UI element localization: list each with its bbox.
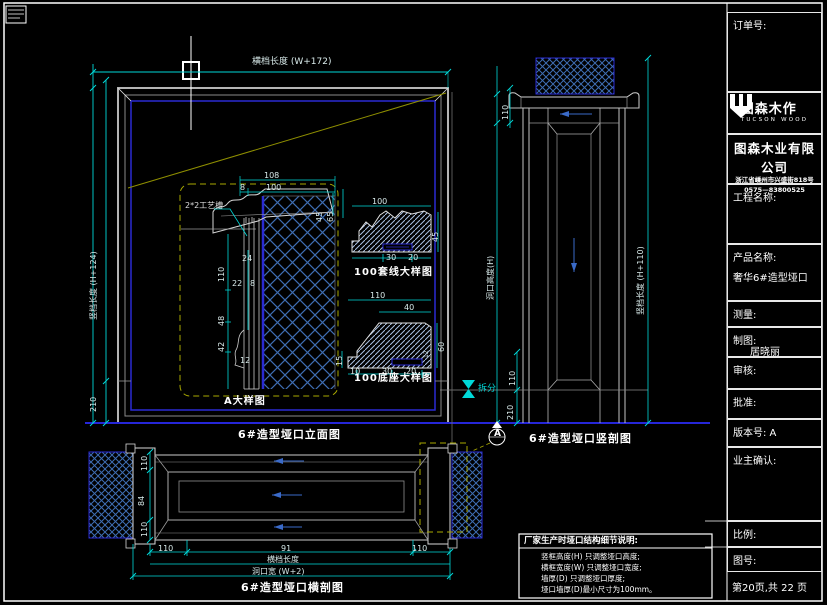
dim-elevation-width: 横档长度 (W+172) <box>252 58 332 67</box>
version-label: 版本号: A <box>733 424 776 439</box>
titleblock-order-row: 订单号: <box>727 12 822 92</box>
hsec-dim-row3: 洞口宽 (W+2) <box>252 568 305 576</box>
product-value: 奢华6#造型垭口 <box>733 269 808 284</box>
base-detail-title: 100底座大样图 <box>354 374 433 384</box>
notes-title: 厂家生产时垭口结构细节说明: <box>524 537 638 546</box>
note-line: 墙厚(D) 只调整垭口厚度; <box>541 574 657 585</box>
base-dim-110: 110 <box>370 292 385 300</box>
base-dim-40: 40 <box>404 304 414 312</box>
vertical-section-linework <box>440 55 651 452</box>
groove-note: 2*2工艺槽 <box>185 202 223 210</box>
casing-dim-45: 45 <box>432 232 440 242</box>
titleblock-scale-row: 比例: <box>727 521 822 547</box>
page-info: 第20页,共 22 页 <box>732 579 807 594</box>
dim-24: 24 <box>242 255 252 263</box>
hsec-dim-left-mid: 84 <box>138 496 146 506</box>
hsec-chain-110-left: 110 <box>158 545 173 553</box>
dim-12: 12 <box>240 357 250 365</box>
casing-dim-30: 30 <box>386 254 396 262</box>
vsec-dim-leg: 竖档长度 (H+110) <box>637 246 645 315</box>
hsec-chain-mid: 91 <box>281 545 291 553</box>
direction-arrow <box>272 458 304 530</box>
titleblock-page-row: 第20页,共 22 页 <box>727 572 822 600</box>
titleblock-version-row: 版本号: A <box>727 419 822 447</box>
hsec-chain-110-right: 110 <box>412 545 427 553</box>
dim-elevation-base: 210 <box>90 397 98 412</box>
titleblock-review-row: 审核: <box>727 357 822 389</box>
dim-108: 108 <box>264 172 279 180</box>
dim-65: 65 <box>327 212 335 222</box>
cad-drawing-sheet: 横档长度 (W+172) 竖档长度 (H+124) 210 6#造型垭口立面图 … <box>0 0 827 605</box>
hsec-dim-left-top: 110 <box>141 456 149 471</box>
dim-110: 110 <box>218 267 226 282</box>
dim-100: 100 <box>266 184 281 192</box>
base-dim-12: 12 <box>424 350 430 358</box>
direction-arrow <box>560 111 592 272</box>
split-label: 拆分 <box>478 385 496 394</box>
titleblock-owner-row: 业主确认: <box>727 447 822 521</box>
approve-label: 批准: <box>733 394 756 409</box>
hsec-dim-left-bot: 110 <box>141 522 149 537</box>
titleblock-draft-row: 制图: 居晓丽 <box>727 327 822 357</box>
tucson-wood-logo-icon <box>728 93 754 119</box>
horizontal-section-title: 6#造型垭口横剖图 <box>241 582 344 593</box>
vsec-dim-110: 110 <box>509 371 517 386</box>
owner-label: 业主确认: <box>733 452 776 467</box>
dim-8: 8 <box>240 184 245 192</box>
vertical-section-title: 6#造型垭口竖剖图 <box>529 433 632 444</box>
dim-42: 42 <box>218 342 226 352</box>
scale-label: 比例: <box>733 526 756 541</box>
review-label: 审核: <box>733 362 756 377</box>
dim-45: 45 <box>316 212 324 222</box>
titleblock-product-row: 产品名称: 奢华6#造型垭口 <box>727 244 822 301</box>
base-dim-60: 60 <box>438 342 446 352</box>
split-marker-icon <box>462 380 475 398</box>
detail-a-title: A大样图 <box>224 397 266 407</box>
dim-elevation-height: 竖档长度 (H+124) <box>90 251 98 320</box>
titleblock-company-row: 图森木业有限公司 浙江省嵊州市兴盛街818号 0575—83800525 <box>727 134 822 184</box>
casing-detail-title: 100套线大样图 <box>354 268 433 278</box>
product-label: 产品名称: <box>733 249 776 264</box>
note-line: 横框宽度(W) 只调整垭口宽度; <box>541 563 657 574</box>
dim-8b: 8 <box>250 280 255 288</box>
titleblock-drawingno-row: 图号: <box>727 547 822 572</box>
titleblock-project-row: 工程名称: <box>727 184 822 244</box>
order-label: 订单号: <box>733 17 766 32</box>
vsec-dim-head: 110 <box>502 105 510 120</box>
drawing-no-label: 图号: <box>733 552 756 567</box>
vsec-dim-210: 210 <box>507 405 515 420</box>
casing-dim-20: 20 <box>408 254 418 262</box>
draft-value: 居晓丽 <box>750 343 780 358</box>
dim-22: 22 <box>232 280 242 288</box>
titleblock-logo-row: 图森木作 TUCSON WOOD <box>727 92 822 134</box>
titleblock-measure-row: 测量: <box>727 301 822 327</box>
measure-label: 测量: <box>733 306 756 321</box>
section-mark-letter: A <box>494 430 501 439</box>
project-label: 工程名称: <box>733 189 776 204</box>
base-dim-15: 15 <box>336 356 344 366</box>
casing-dim-100: 100 <box>372 198 387 206</box>
note-line: 垭口墙厚(D)最小尺寸为100mm。 <box>541 585 657 596</box>
dim-48: 48 <box>218 316 226 326</box>
company-name: 图森木业有限公司 <box>728 138 821 176</box>
hsec-dim-row2: 横档长度 <box>267 556 299 564</box>
vsec-dim-hole: 洞口高度(H) <box>487 256 495 300</box>
notes-list: 竖框高度(H) 只调整垭口高度; 横框宽度(W) 只调整垭口宽度; 墙厚(D) … <box>541 552 657 596</box>
titleblock-approve-row: 批准: <box>727 389 822 419</box>
elevation-title: 6#造型垭口立面图 <box>238 429 341 440</box>
note-line: 竖框高度(H) 只调整垭口高度; <box>541 552 657 563</box>
